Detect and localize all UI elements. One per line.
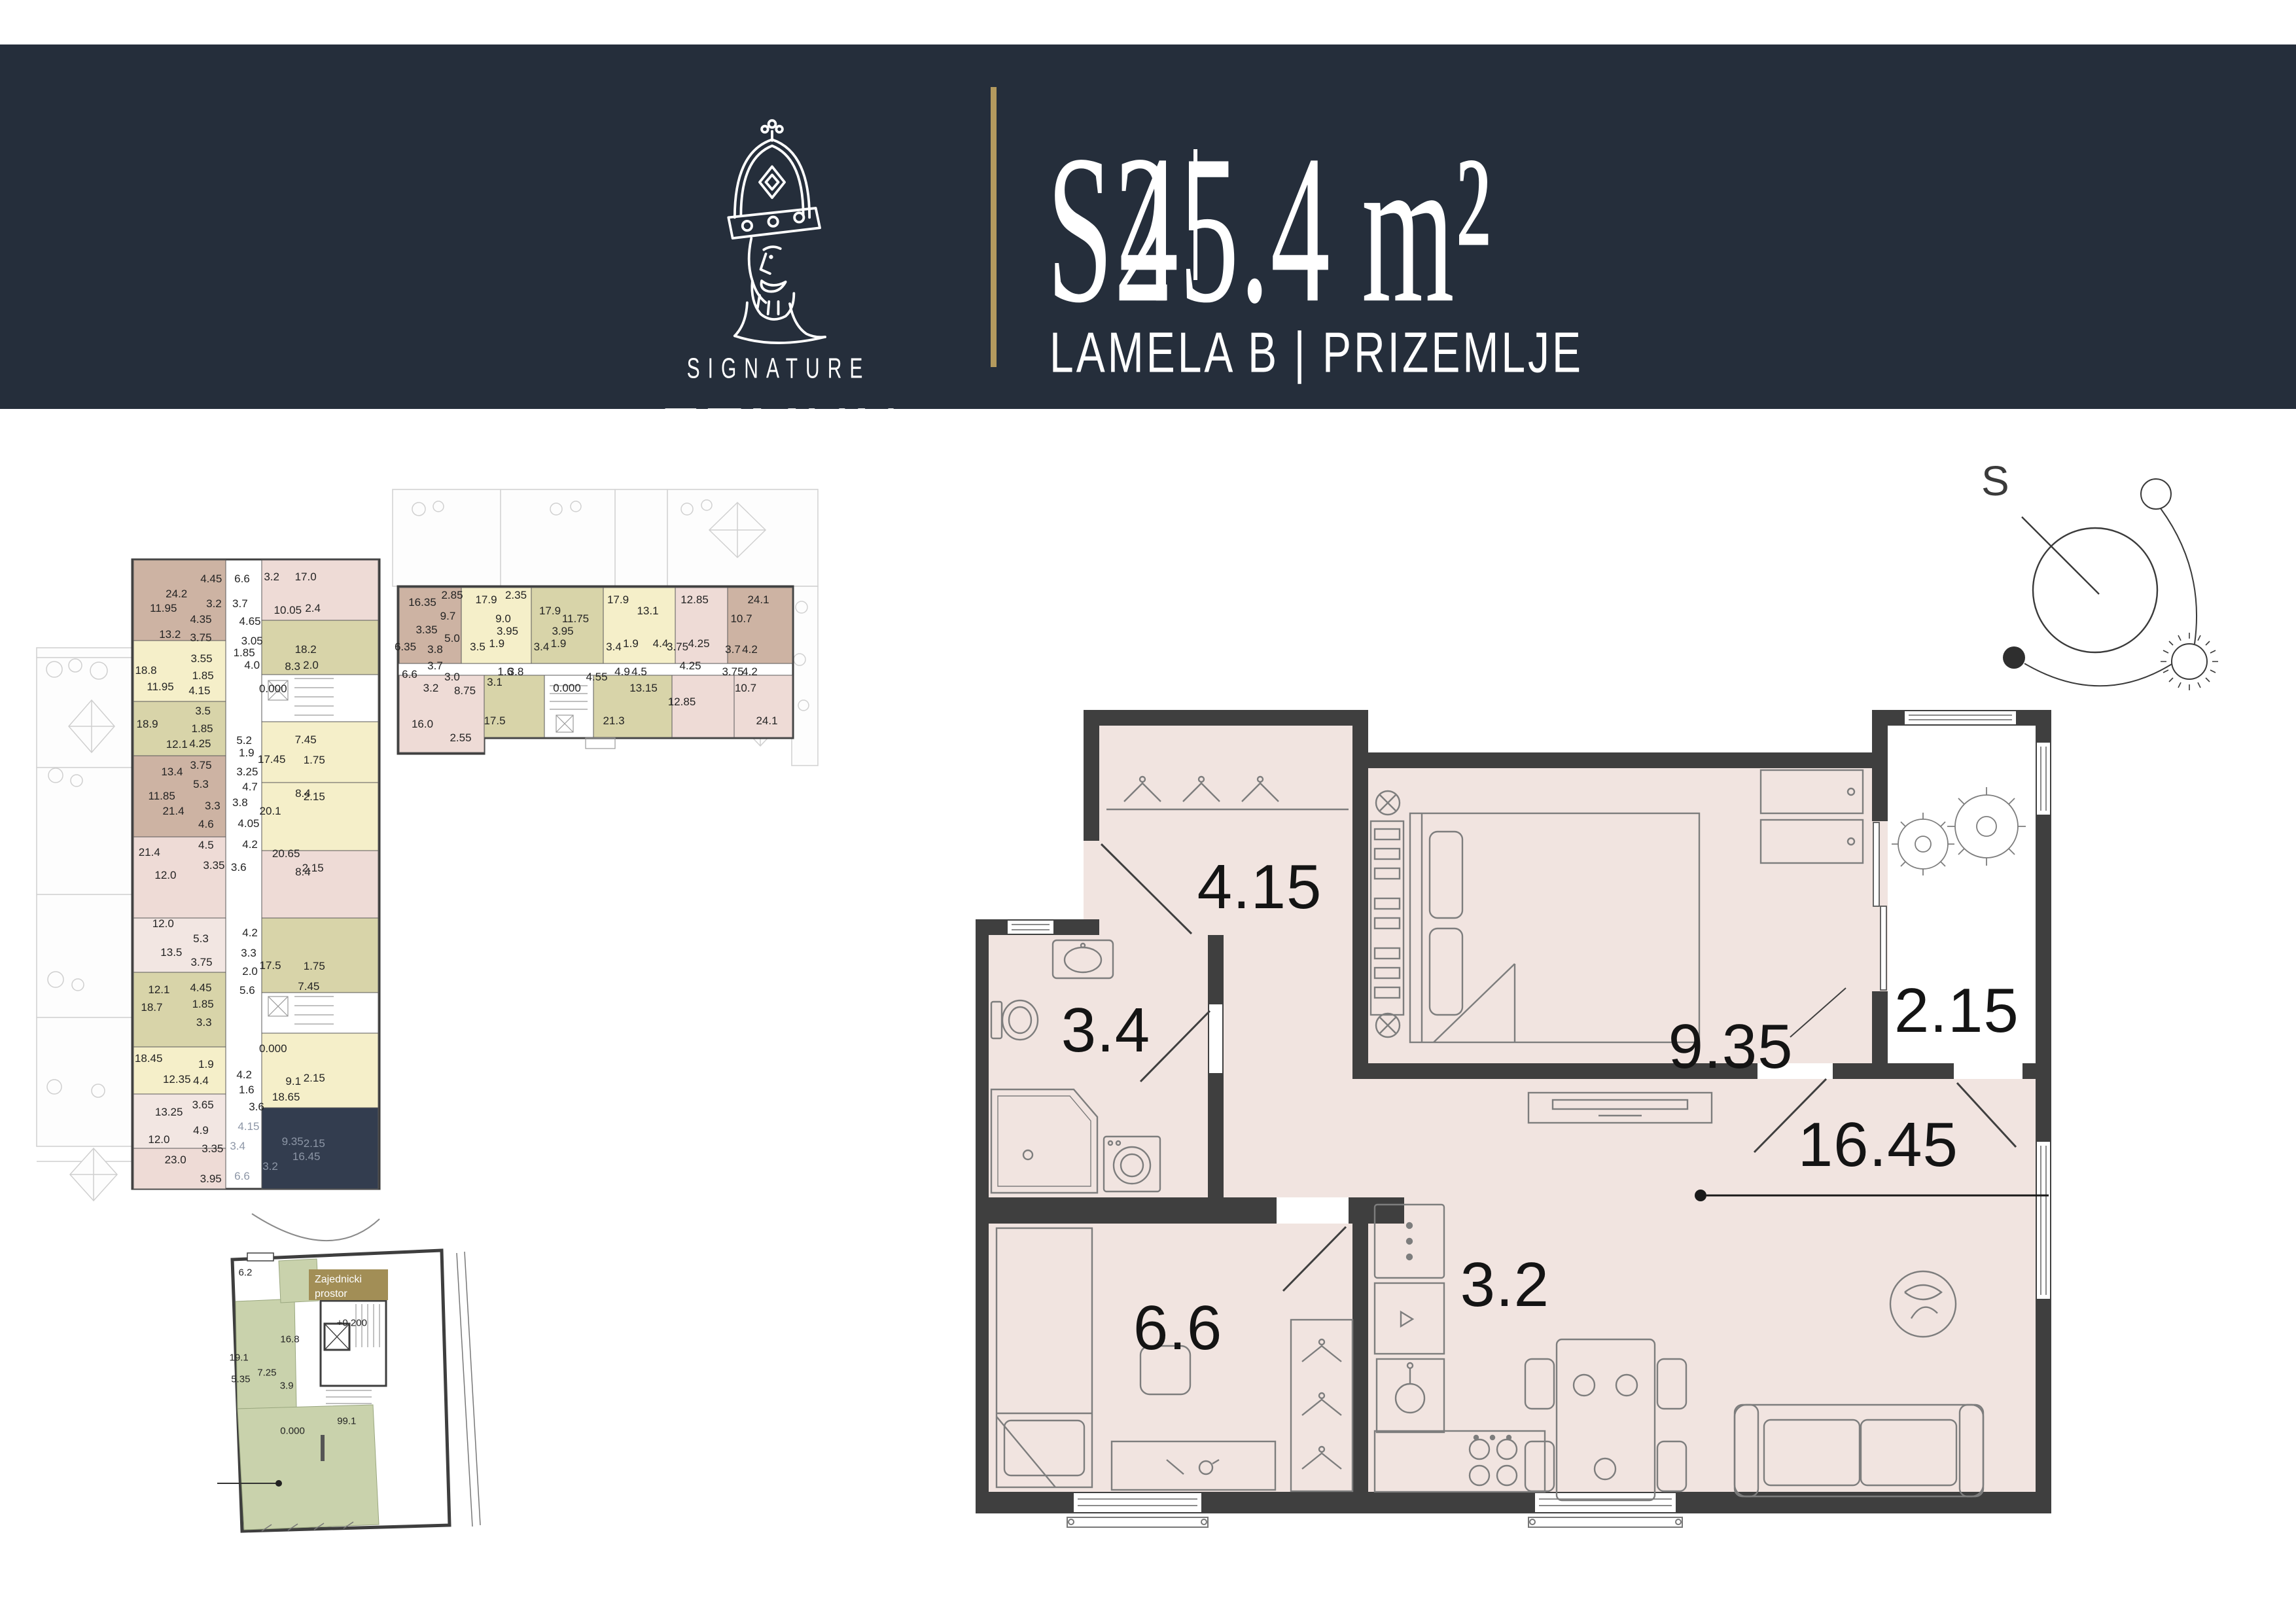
area-label: 24.1 [756, 715, 777, 728]
area-label: 3.35 [202, 1142, 223, 1156]
apartment-plan-s2: 4.153.49.352.1516.456.63.2 [976, 710, 2051, 1534]
area-label: 3.2 [262, 1160, 278, 1173]
area-label: 3.2 [264, 571, 279, 584]
site-plan-common-space: Zajednicki prostor 6.216.819.17.255.353.… [216, 1239, 507, 1538]
area-label: 4.25 [688, 637, 709, 650]
area-label: 16.0 [412, 718, 433, 731]
sunset-dot [2003, 646, 2025, 669]
area-label: 3.8 [232, 796, 248, 809]
brand-name-top: SIGNATURE [648, 353, 910, 385]
area-label: 4.0 [244, 659, 260, 672]
area-label: 3.65 [192, 1099, 214, 1112]
area-label: 1.75 [304, 960, 325, 973]
area-label: 5.2 [236, 734, 252, 747]
area-label: 17.5 [484, 715, 505, 728]
area-label: 21.3 [603, 715, 624, 728]
area-label: 1.9 [551, 637, 567, 650]
area-label: 1.85 [234, 646, 255, 660]
area-label: 0.000 [259, 682, 287, 696]
area-label: 5.3 [193, 778, 209, 791]
area-label: 3.75 [191, 956, 213, 969]
area-label: 3.6 [249, 1101, 264, 1114]
area-label: 3.75 [667, 641, 688, 654]
area-label: 3.2 [423, 682, 439, 695]
area-label: 24.2 [166, 588, 187, 601]
area-label: 12.0 [154, 869, 176, 882]
area-label: 16.8 [280, 1333, 299, 1345]
area-label: 2.4 [305, 602, 321, 615]
area-label: 3.6 [231, 861, 247, 874]
area-label: 9.35 [282, 1135, 304, 1148]
room-area-label: 9.35 [1669, 1011, 1793, 1083]
area-label: 10.05 [274, 604, 302, 617]
area-label: 6.6 [234, 573, 250, 586]
main-plan-labels: 4.153.49.352.1516.456.63.2 [976, 710, 2051, 1534]
area-label: 3.7 [232, 597, 248, 610]
sun-path-arc-east [2161, 508, 2197, 644]
area-label: 5.6 [239, 984, 255, 997]
room-area-label: 3.4 [1061, 995, 1150, 1067]
area-label: 13.25 [155, 1106, 183, 1119]
area-label: 18.8 [135, 664, 156, 677]
area-label: 8.3 [285, 660, 300, 673]
area-label: 16.35 [408, 596, 436, 609]
area-label: 3.0 [444, 671, 460, 684]
header-band: SIGNATURE ZEMUN S2 45.4 m² LAMELA B | PR… [0, 44, 2296, 409]
north-label: S [1981, 457, 2009, 505]
area-label: 3.95 [552, 625, 573, 638]
area-label: 4.7 [242, 781, 258, 794]
area-label: 3.55 [191, 652, 213, 665]
unit-area: 45.4 m² [1119, 123, 1492, 336]
area-label: 19.1 [230, 1352, 249, 1363]
area-label: 0.000 [280, 1425, 305, 1436]
area-label: 3.4 [534, 641, 550, 654]
brand-logo: SIGNATURE ZEMUN [648, 110, 910, 463]
area-label: 5.35 [231, 1373, 250, 1385]
area-label: 12.35 [163, 1073, 191, 1086]
sun-icon [2161, 633, 2218, 690]
area-label: 4.05 [238, 817, 259, 830]
area-label: 3.95 [200, 1173, 222, 1186]
area-label: 2.15 [304, 790, 325, 803]
area-label: 18.2 [295, 643, 317, 656]
area-label: 10.7 [735, 682, 756, 695]
area-label: 12.0 [152, 917, 174, 930]
area-label: 4.65 [239, 615, 261, 628]
area-label: 3.35 [203, 859, 224, 872]
area-label: 4.4 [653, 637, 669, 650]
area-label: 4.5 [631, 665, 647, 679]
area-label: 3.3 [196, 1016, 212, 1029]
area-label: 1.75 [304, 754, 325, 767]
area-label: 3.75 [722, 665, 743, 679]
area-label: 3.4 [230, 1140, 245, 1153]
area-label: 4.2 [742, 665, 758, 679]
area-label: 9.1 [285, 1075, 301, 1088]
site-plan-lamela-a: 16.352.859.73.355.017.92.359.03.953.51.9… [393, 489, 818, 766]
area-label: 12.0 [148, 1133, 169, 1146]
floorplan-sheet: SIGNATURE ZEMUN S2 45.4 m² LAMELA B | PR… [0, 0, 2296, 1624]
area-label: 3.95 [497, 625, 518, 638]
area-label: 12.1 [148, 983, 169, 997]
area-label: 2.35 [505, 589, 527, 602]
room-area-label: 4.15 [1197, 851, 1322, 923]
area-label: 3.8 [508, 665, 524, 679]
area-label: 12.85 [680, 593, 709, 607]
area-label: 2.15 [304, 1072, 325, 1085]
area-label: 4.45 [200, 573, 222, 586]
area-label: 2.0 [242, 965, 258, 978]
site-plan-bottom-labels: 6.216.819.17.255.353.9+0.2000.00099.1 [216, 1239, 507, 1538]
area-label: 1.6 [239, 1084, 255, 1097]
king-crown-icon [689, 116, 855, 345]
area-label: 12.1 [166, 738, 188, 751]
area-label: 17.9 [539, 605, 561, 618]
area-label: 23.0 [165, 1154, 186, 1167]
area-label: 21.4 [139, 846, 160, 859]
area-label: 11.95 [150, 602, 177, 615]
area-label: 8.4 [295, 866, 311, 879]
area-label: 3.7 [725, 643, 741, 656]
area-label: 11.75 [562, 612, 589, 626]
area-label: 3.3 [241, 947, 256, 960]
area-label: 20.65 [272, 847, 300, 860]
area-label: 9.0 [495, 612, 511, 626]
area-label: 4.25 [679, 660, 701, 673]
area-label: 3.3 [205, 800, 221, 813]
area-label: 4.2 [742, 643, 758, 656]
area-label: 0.000 [553, 682, 581, 695]
area-label: 1.85 [192, 669, 214, 682]
area-label: 7.25 [257, 1368, 276, 1379]
area-label: 4.2 [236, 1068, 252, 1082]
site-plan-lamela-b: 24.24.453.211.954.3513.23.756.63.217.03.… [36, 559, 380, 1237]
sunrise-circle [2141, 479, 2171, 509]
room-area-label: 6.6 [1133, 1292, 1222, 1364]
sun-path-arc-south [2024, 663, 2172, 686]
area-label: 17.45 [258, 753, 286, 766]
area-label: 13.5 [160, 946, 182, 959]
area-label: 11.95 [147, 680, 173, 694]
unit-location: LAMELA B | PRIZEMLJE [1050, 319, 1583, 385]
area-label: 1.9 [623, 637, 639, 650]
area-label: 10.7 [730, 612, 752, 626]
area-label: 2.15 [304, 1137, 325, 1150]
area-label: 7.45 [295, 733, 317, 747]
area-label: 3.5 [470, 641, 486, 654]
area-label: 99.1 [337, 1416, 356, 1427]
area-label: 3.9 [280, 1380, 294, 1391]
area-label: 4.45 [190, 981, 211, 995]
area-label: 4.9 [193, 1124, 209, 1137]
area-label: 4.25 [189, 737, 211, 750]
area-label: 4.2 [242, 927, 258, 940]
area-label: 24.1 [747, 593, 769, 607]
area-label: 3.4 [606, 641, 622, 654]
area-label: 11.85 [149, 790, 175, 803]
area-label: 2.55 [450, 732, 471, 745]
area-label: 9.7 [440, 610, 456, 623]
area-label: 12.85 [668, 696, 696, 709]
area-label: 3.75 [190, 631, 211, 644]
area-label: 18.9 [137, 718, 158, 731]
area-label: 4.55 [586, 671, 607, 684]
area-label: 3.25 [236, 766, 258, 779]
room-area-label: 3.2 [1460, 1249, 1549, 1321]
room-area-label: 2.15 [1894, 975, 2019, 1047]
site-plan-top-labels: 16.352.859.73.355.017.92.359.03.953.51.9… [393, 489, 818, 766]
room-area-label: 16.45 [1798, 1109, 1958, 1181]
area-label: 1.9 [198, 1058, 214, 1071]
area-label: 13.4 [161, 766, 183, 779]
area-label: 17.5 [260, 959, 281, 972]
area-label: 4.35 [190, 613, 211, 626]
brand-name-bottom: ZEMUN [661, 387, 896, 489]
site-plan-left-labels: 24.24.453.211.954.3513.23.756.63.217.03.… [36, 559, 380, 1237]
area-label: 1.85 [192, 998, 214, 1011]
area-label: 3.75 [190, 759, 211, 772]
area-label: 17.9 [475, 593, 497, 607]
area-label: 6.35 [395, 641, 416, 654]
area-label: 3.5 [195, 705, 211, 718]
area-label: +0.200 [337, 1317, 367, 1328]
area-label: 4.6 [198, 818, 214, 831]
area-label: 18.7 [141, 1001, 162, 1014]
area-label: 18.65 [272, 1091, 300, 1104]
unit-title: S2 45.4 m² LAMELA B | PRIZEMLJE [1047, 123, 1651, 293]
area-label: 3.35 [415, 624, 437, 637]
area-label: 7.45 [298, 980, 319, 993]
area-label: 20.1 [260, 805, 281, 818]
area-label: 6.2 [239, 1267, 253, 1279]
area-label: 2.85 [441, 589, 463, 602]
area-label: 21.4 [162, 805, 184, 818]
area-label: 17.9 [607, 593, 629, 607]
area-label: 3.7 [427, 660, 443, 673]
area-label: 5.0 [444, 632, 460, 645]
area-label: 5.3 [193, 932, 209, 945]
area-label: 1.85 [192, 722, 213, 735]
area-label: 1.9 [239, 747, 255, 760]
area-label: 4.4 [193, 1074, 209, 1087]
area-label: 0.000 [259, 1042, 287, 1055]
area-label: 4.15 [188, 684, 210, 697]
area-label: 3.2 [206, 597, 222, 610]
area-label: 13.2 [159, 628, 181, 641]
area-label: 2.0 [303, 659, 319, 672]
area-label: 16.45 [292, 1150, 321, 1163]
area-label: 4.9 [614, 665, 630, 679]
gold-divider [991, 87, 997, 367]
area-label: 1.9 [489, 637, 504, 650]
area-label: 6.6 [234, 1170, 250, 1183]
area-label: 6.6 [402, 668, 417, 681]
area-label: 18.45 [135, 1052, 163, 1065]
area-label: 13.1 [637, 605, 658, 618]
area-label: 17.0 [295, 571, 317, 584]
area-label: 4.15 [238, 1120, 259, 1133]
area-label: 3.8 [427, 643, 443, 656]
area-label: 4.5 [198, 839, 214, 852]
area-label: 8.75 [454, 684, 476, 697]
area-label: 13.15 [629, 682, 658, 695]
compass-sun-diagram: S [1930, 438, 2284, 746]
area-label: 4.2 [242, 838, 258, 851]
